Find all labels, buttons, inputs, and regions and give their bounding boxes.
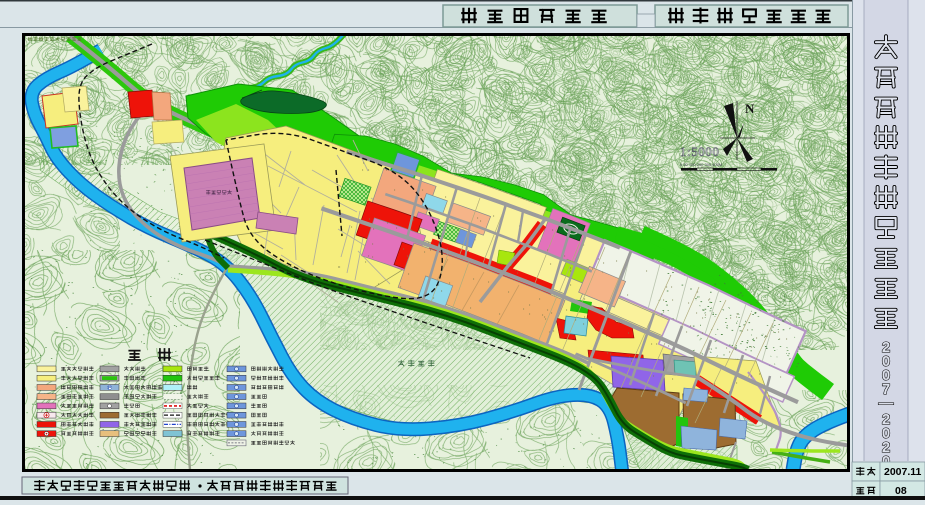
svg-text:N: N	[745, 101, 755, 116]
svg-text:08: 08	[895, 485, 907, 497]
svg-text:1:5000: 1:5000	[680, 145, 720, 159]
svg-text:0 50 100 200 300: 0 50 100 200 300 400M	[680, 162, 722, 167]
svg-text:2007.11: 2007.11	[884, 466, 922, 478]
svg-text:P: P	[108, 385, 111, 390]
svg-text:—: —	[879, 395, 894, 412]
